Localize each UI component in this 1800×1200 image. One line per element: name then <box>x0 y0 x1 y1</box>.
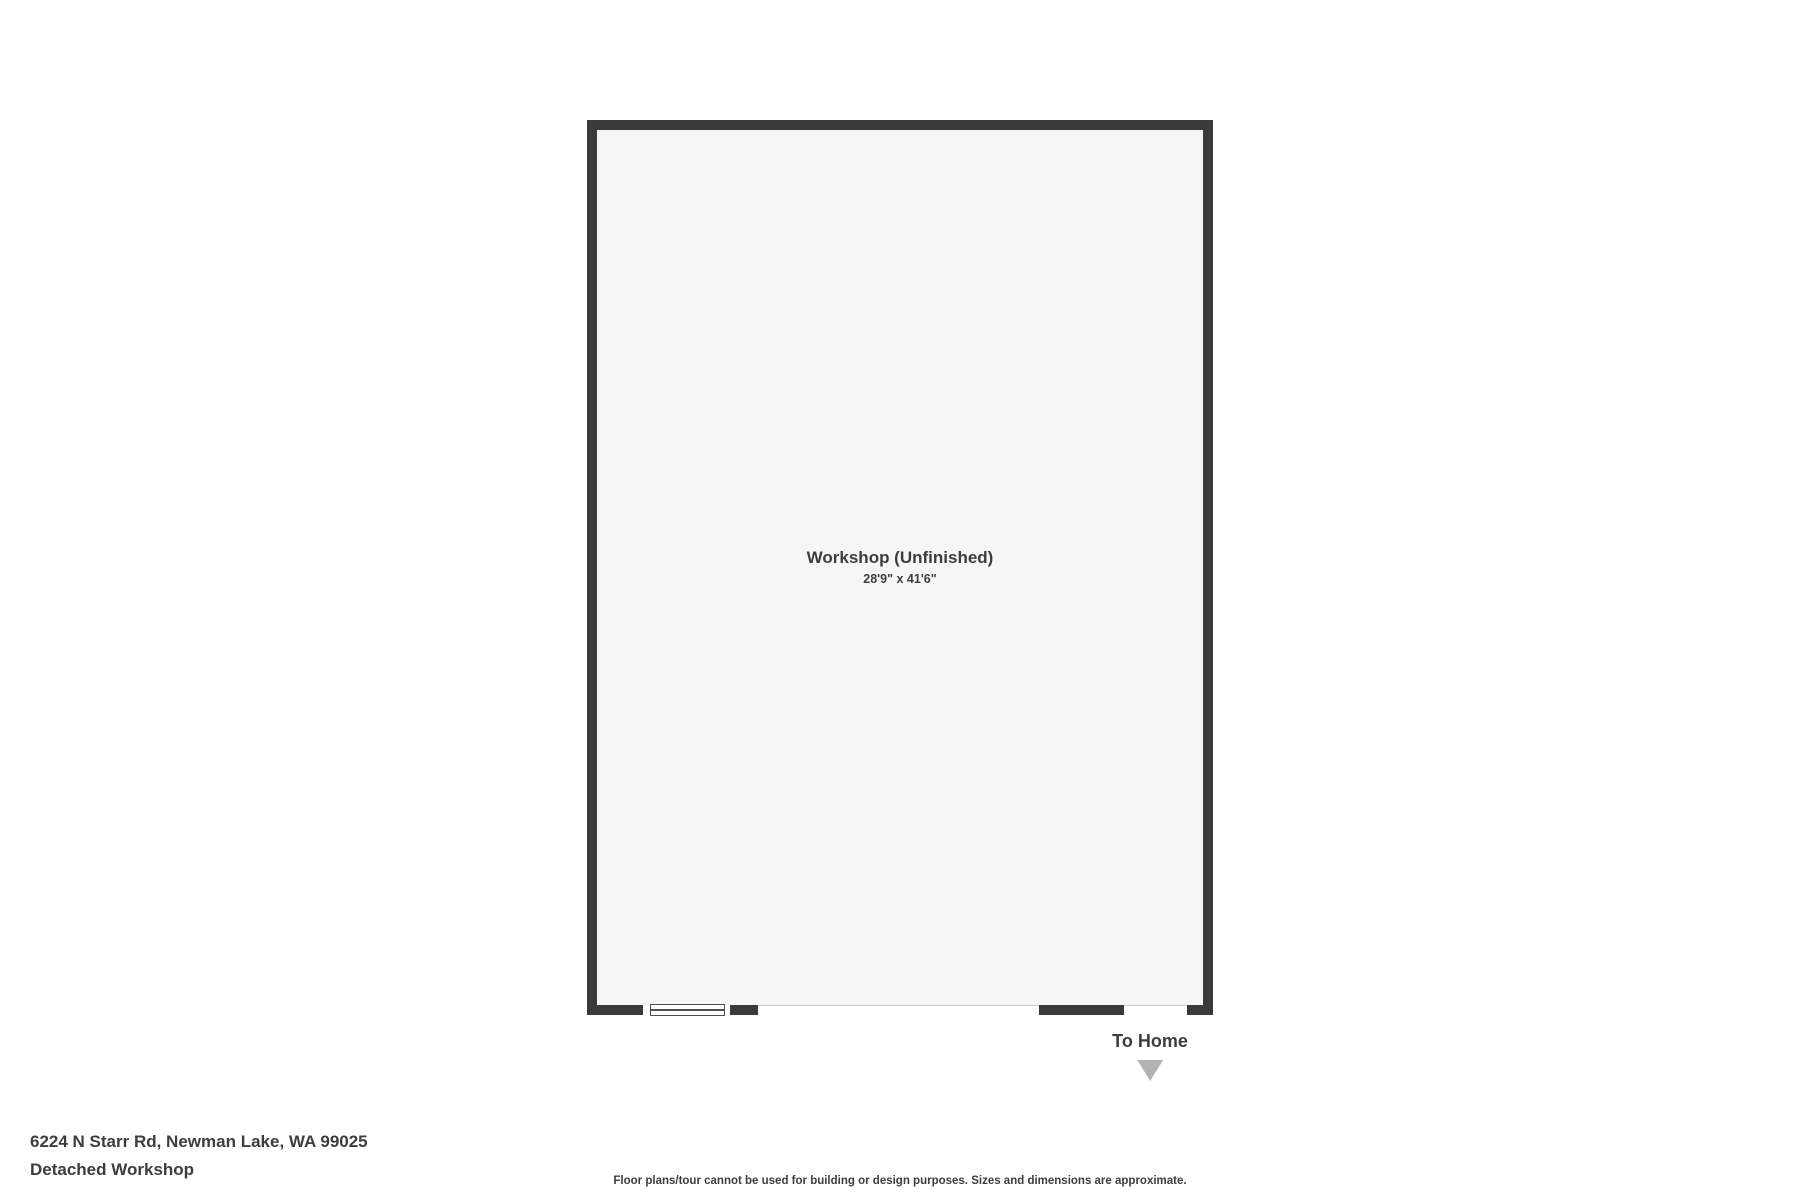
to-home-navigation[interactable]: To Home <box>1112 1030 1188 1081</box>
triangle-down-icon <box>1137 1060 1163 1081</box>
to-home-label: To Home <box>1112 1030 1188 1052</box>
property-address: 6224 N Starr Rd, Newman Lake, WA 99025 <box>30 1132 368 1152</box>
window-symbol <box>650 1004 725 1016</box>
disclaimer-text: Floor plans/tour cannot be used for buil… <box>0 1175 1800 1187</box>
room-dimensions: 28'9" x 41'6" <box>597 572 1203 586</box>
door-opening <box>1124 1005 1187 1015</box>
garage-door-opening <box>758 1005 1039 1015</box>
room-name: Workshop (Unfinished) <box>597 548 1203 568</box>
window-midline <box>651 1009 724 1011</box>
room-label: Workshop (Unfinished) 28'9" x 41'6" <box>597 548 1203 586</box>
floorplan-workshop: Workshop (Unfinished) 28'9" x 41'6" <box>587 120 1213 1015</box>
